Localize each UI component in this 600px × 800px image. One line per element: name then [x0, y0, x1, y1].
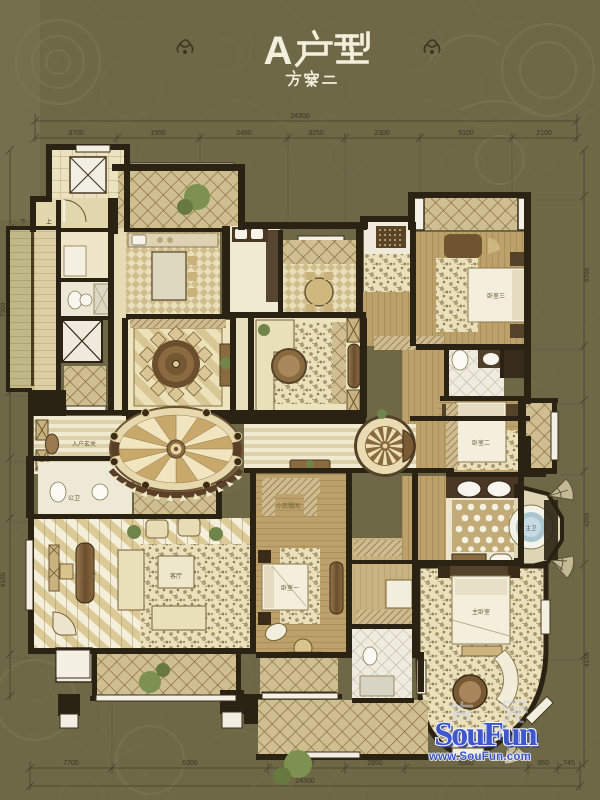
svg-text:3250: 3250 [308, 130, 324, 137]
svg-text:2450: 2450 [236, 130, 252, 137]
svg-text:入户玄关: 入户玄关 [72, 440, 96, 448]
svg-text:2100: 2100 [536, 130, 552, 137]
svg-text:745: 745 [563, 760, 575, 767]
svg-text:上: 上 [46, 218, 52, 226]
svg-text:客厅: 客厅 [84, 572, 96, 580]
svg-text:客厅: 客厅 [170, 572, 182, 580]
svg-text:5100: 5100 [458, 130, 474, 137]
svg-text:7700: 7700 [63, 760, 79, 767]
svg-text:3700: 3700 [68, 130, 84, 137]
svg-text:6100: 6100 [0, 572, 7, 587]
svg-text:卧室二: 卧室二 [472, 439, 490, 447]
svg-text:www.SouFun.com: www.SouFun.com [428, 751, 531, 763]
svg-text:2650: 2650 [367, 760, 383, 767]
svg-text:24300: 24300 [290, 113, 310, 120]
svg-text:4200: 4200 [584, 512, 591, 527]
svg-text:4100: 4100 [584, 652, 591, 667]
svg-text:2300: 2300 [374, 130, 390, 137]
svg-text:公卫: 公卫 [68, 495, 80, 502]
svg-text:小衣帽间: 小衣帽间 [276, 502, 300, 510]
svg-text:主卧室: 主卧室 [472, 608, 490, 616]
svg-text:下: 下 [20, 219, 26, 226]
svg-text:6700: 6700 [584, 267, 591, 282]
svg-text:950: 950 [537, 760, 549, 767]
svg-text:24300: 24300 [295, 778, 315, 785]
svg-text:A: A [264, 29, 293, 73]
svg-text:卧室三: 卧室三 [487, 292, 505, 300]
svg-text:1950: 1950 [150, 130, 166, 137]
svg-text:卧室一: 卧室一 [281, 584, 299, 592]
svg-text:SouFun: SouFun [434, 716, 537, 753]
svg-text:6300: 6300 [182, 760, 198, 767]
svg-text:7300: 7300 [0, 302, 7, 317]
svg-text:主卫: 主卫 [525, 524, 537, 532]
